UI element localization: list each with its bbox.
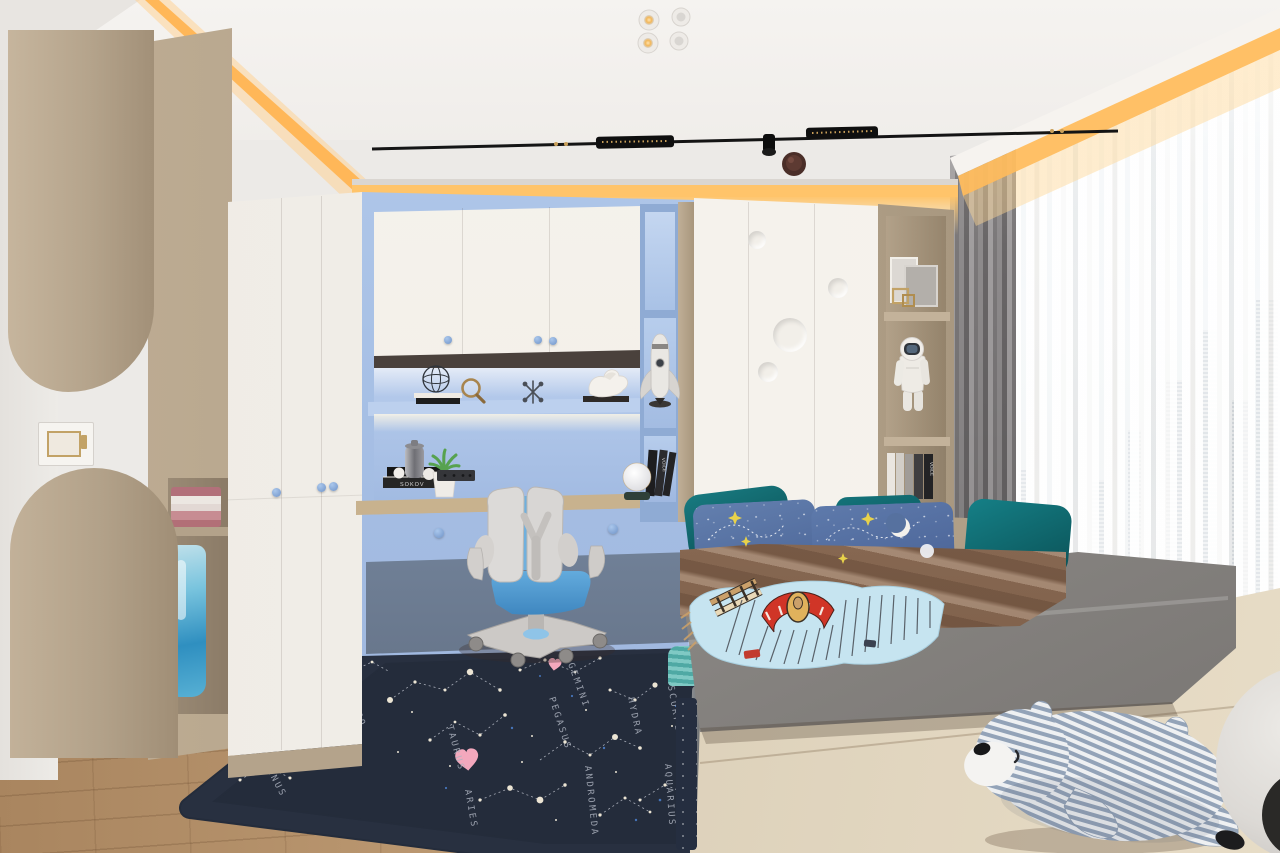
wood-panel-upper	[8, 30, 154, 392]
drawer-seam	[518, 511, 519, 559]
circle-handle	[758, 362, 778, 382]
navy-bedside-fabric	[676, 698, 697, 850]
wardrobe-knob	[272, 488, 281, 497]
shelf-niche	[374, 368, 642, 500]
bookcase-wood-side	[678, 202, 696, 522]
switch-toggle	[81, 435, 87, 449]
bed-wardrobe-seam	[748, 202, 749, 510]
cabinet-knob	[444, 336, 452, 344]
wardrobe-knob	[317, 483, 326, 492]
shelf-cubby-frames	[886, 216, 946, 312]
shelf-cubby-astronaut	[886, 321, 946, 437]
wardrobe-door-seam	[321, 196, 322, 748]
shelf-face	[884, 312, 950, 321]
cabinet-knob	[549, 337, 557, 345]
cubby-shelf	[168, 527, 232, 536]
switch-plate	[47, 431, 81, 457]
drawer-knob	[608, 524, 618, 534]
wood-panel-lower-arch	[10, 468, 178, 758]
circle-handle	[748, 231, 766, 249]
wardrobe-knob	[329, 482, 338, 491]
cabinet-door-seam	[549, 207, 550, 357]
light-switch	[38, 422, 94, 466]
drawer-knob	[434, 528, 444, 538]
circle-handle	[828, 278, 848, 298]
cabinet-knob	[534, 336, 542, 344]
shelf-underglow	[374, 414, 642, 432]
bookcase-cubby-rocket	[644, 318, 676, 428]
bedroom-render: ERIDANUS LEO TAURUS ARIES PEGASUS GEMINI…	[0, 0, 1280, 853]
bookcase-cubby-top	[645, 212, 675, 310]
bed-wardrobe-seam	[814, 204, 815, 510]
bookcase-cubby-books	[644, 436, 676, 502]
wardrobe-door-seam	[281, 198, 282, 750]
shelf-face	[884, 437, 950, 446]
circle-handle	[773, 318, 807, 352]
folded-towels	[171, 487, 221, 527]
cabinet-door-seam	[462, 208, 463, 358]
